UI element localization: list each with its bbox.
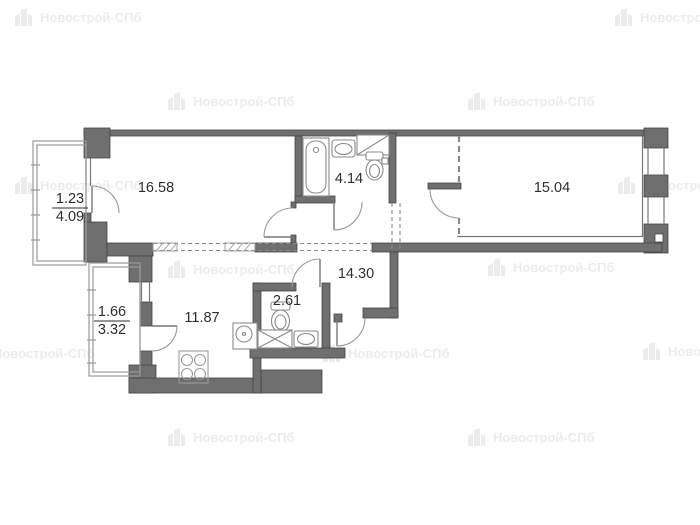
door-bedroom (430, 189, 459, 218)
svg-text:1.66: 1.66 (98, 304, 126, 320)
wall (129, 378, 262, 393)
bathtub (303, 138, 329, 196)
door-balcony-top (92, 186, 119, 213)
room-area-label-wc: 2.61 (273, 293, 301, 309)
room-area-label-kitchen: 11.87 (184, 310, 219, 326)
wall (84, 128, 110, 158)
door-arc (92, 186, 119, 213)
wc-sink (294, 331, 318, 347)
wall (84, 213, 91, 222)
shower-tray (258, 330, 292, 348)
wall (84, 222, 107, 262)
door-living (264, 208, 293, 237)
wall (322, 283, 330, 358)
wall (291, 202, 296, 208)
hatched-stubs (153, 243, 255, 251)
door-arc (152, 326, 177, 351)
wall-notch (655, 234, 663, 242)
door-balcony-bottom (152, 326, 177, 351)
wall (291, 235, 296, 243)
wall (644, 128, 668, 148)
door-arc (430, 189, 459, 218)
room-area-label-balcony-top: 1.23 4.09 (52, 191, 88, 225)
wall (372, 243, 662, 252)
room-area-label-hallway: 14.30 (338, 266, 374, 282)
kitchen-sink (233, 323, 257, 349)
bathroom-sink (332, 140, 355, 157)
wall (389, 133, 396, 203)
wall (140, 302, 152, 326)
wall (253, 283, 296, 291)
wall (261, 370, 322, 393)
room-area-label-living: 16.58 (138, 180, 174, 196)
wall (644, 175, 668, 197)
wall (334, 314, 342, 322)
wall (363, 308, 398, 318)
room-area-label-bathroom: 4.14 (335, 171, 363, 187)
svg-text:4.09: 4.09 (56, 209, 84, 225)
svg-text:1.23: 1.23 (56, 191, 84, 207)
door-arc (264, 208, 293, 237)
wall (295, 196, 335, 203)
wall (250, 348, 345, 358)
wall (295, 136, 302, 202)
room-area-label-bedroom: 15.04 (534, 180, 570, 196)
floorplan-canvas: Новострой-СПб Новострой-СПб Новострой-СП… (0, 0, 700, 525)
wall (428, 183, 461, 189)
wall (107, 243, 153, 256)
door-bathroom (334, 202, 362, 230)
svg-text:3.32: 3.32 (98, 322, 126, 338)
door-arc (334, 202, 362, 230)
floorplan-svg: 16.58 4.14 15.04 14.30 2.61 11.87 1.23 4… (0, 0, 700, 525)
room-area-label-balcony-bottom: 1.66 3.32 (94, 304, 130, 338)
toilet-bathroom (366, 152, 388, 180)
